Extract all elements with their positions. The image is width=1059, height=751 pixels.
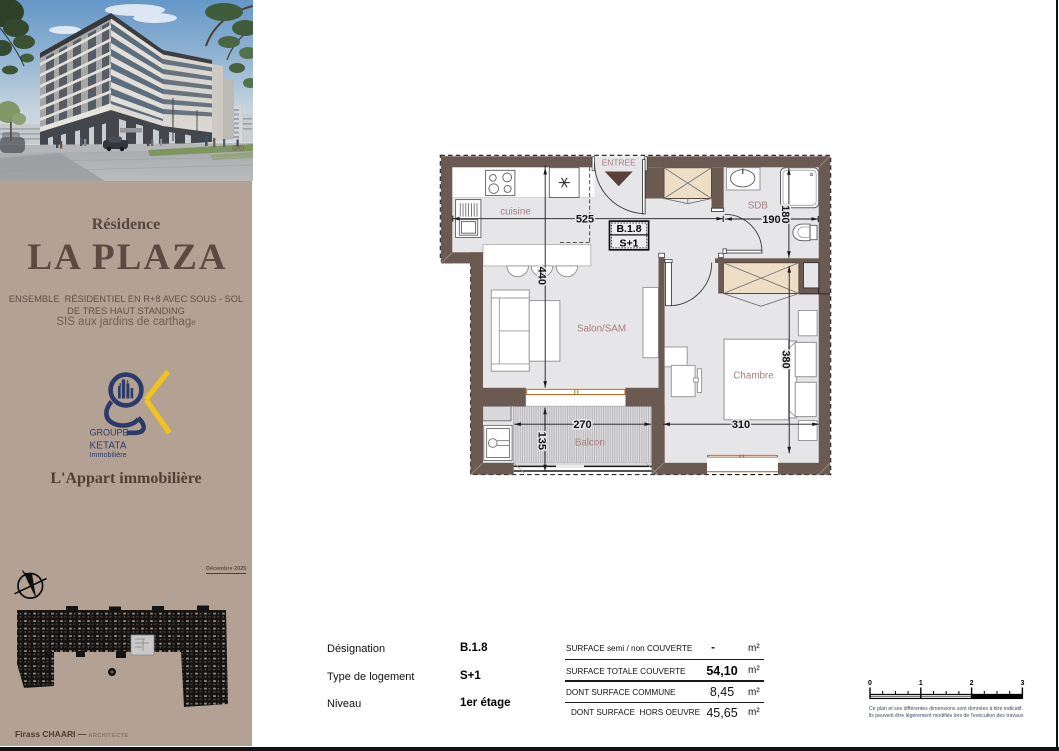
svg-text:B.1.8: B.1.8 (616, 223, 641, 235)
svg-text:S+1: S+1 (620, 237, 639, 249)
svg-text:1: 1 (919, 680, 923, 687)
svg-text:440: 440 (535, 267, 547, 285)
svg-text:310: 310 (732, 419, 750, 431)
svg-text:cuisine: cuisine (500, 206, 531, 217)
svg-text:270: 270 (573, 419, 591, 431)
svg-text:2: 2 (970, 680, 974, 687)
svg-text:190: 190 (762, 214, 780, 226)
svg-text:Balcon: Balcon (575, 438, 605, 449)
svg-text:3: 3 (1020, 680, 1024, 687)
svg-text:135: 135 (535, 432, 547, 450)
svg-text:ENTREE: ENTREE (602, 158, 636, 168)
svg-text:SDB: SDB (748, 201, 769, 212)
svg-text:Chambre: Chambre (733, 370, 774, 381)
svg-text:Immobilière: Immobilière (90, 450, 127, 459)
svg-text:525: 525 (576, 214, 594, 226)
svg-text:GROUPE: GROUPE (90, 428, 129, 438)
svg-text:Salon/SAM: Salon/SAM (577, 324, 626, 335)
svg-text:380: 380 (779, 350, 791, 368)
svg-text:0: 0 (868, 680, 872, 687)
svg-text:180: 180 (779, 205, 791, 223)
